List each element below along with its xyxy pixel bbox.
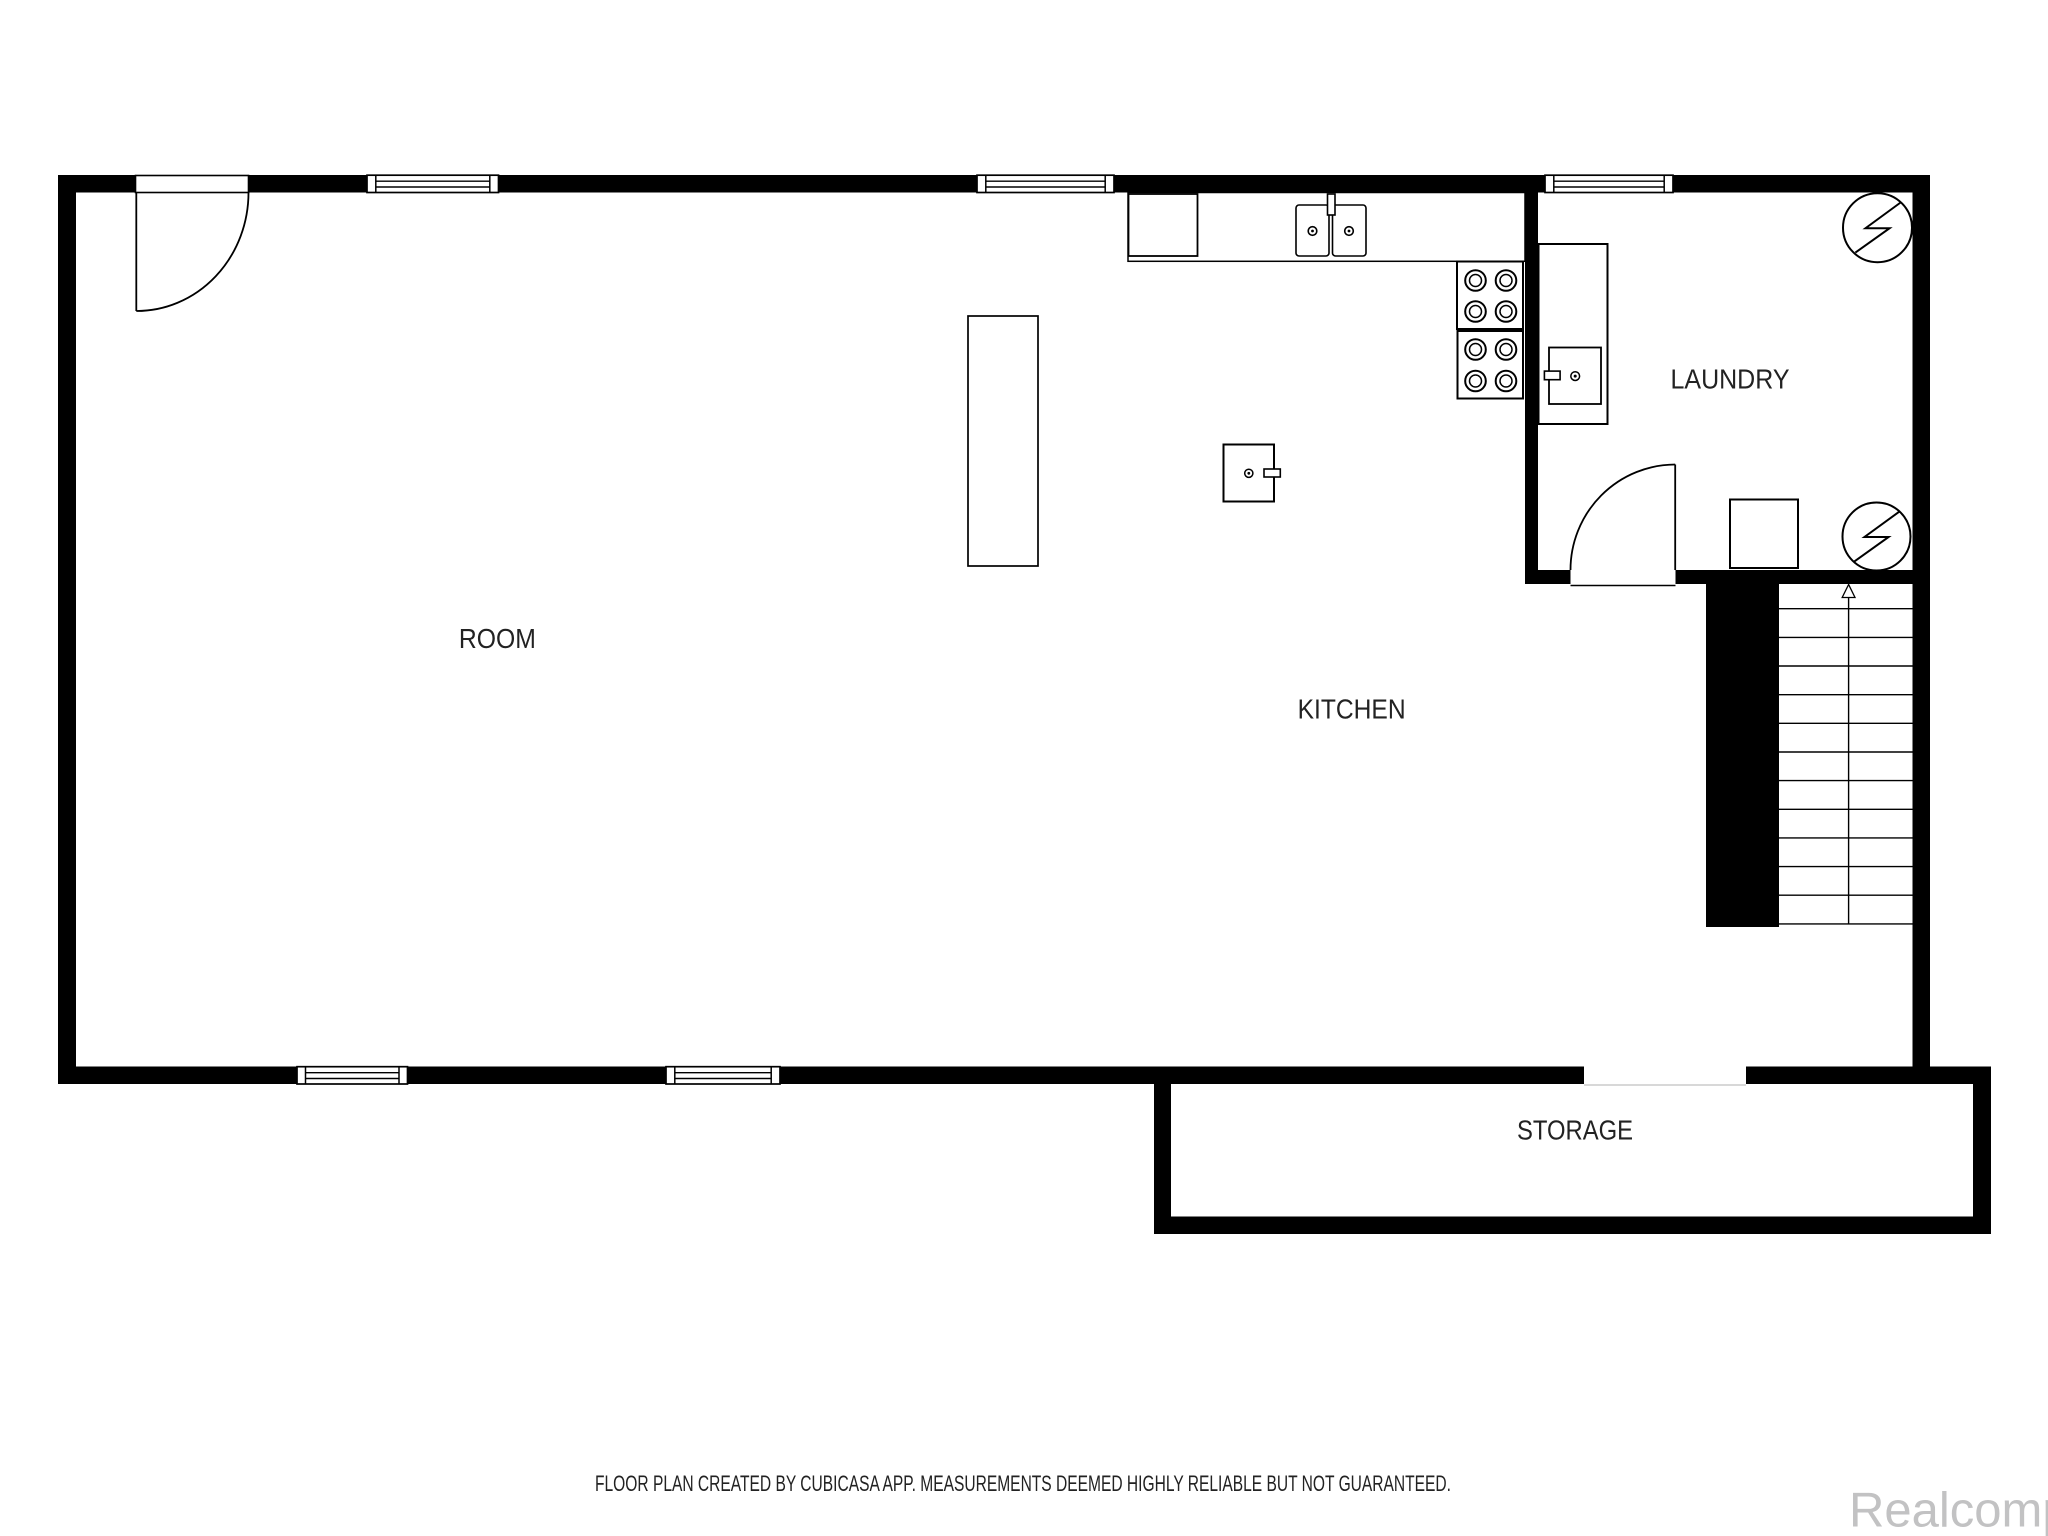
svg-text:LAUNDRY: LAUNDRY <box>1671 364 1790 395</box>
svg-text:Realcomp: Realcomp <box>1849 1484 2048 1536</box>
svg-text:ROOM: ROOM <box>459 623 536 654</box>
svg-text:KITCHEN: KITCHEN <box>1298 694 1406 725</box>
svg-text:FLOOR PLAN CREATED BY CUBICASA: FLOOR PLAN CREATED BY CUBICASA APP. MEAS… <box>595 1471 1451 1496</box>
svg-text:STORAGE: STORAGE <box>1517 1115 1633 1146</box>
